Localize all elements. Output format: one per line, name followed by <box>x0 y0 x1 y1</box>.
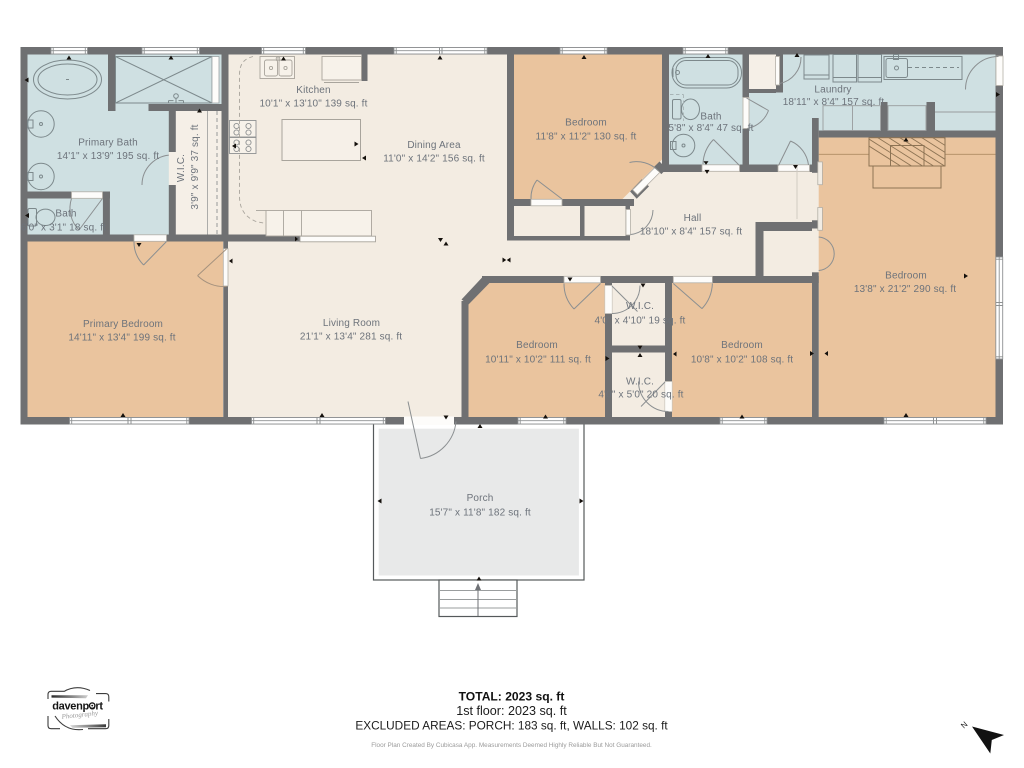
svg-text:TOTAL: 2023 sq. ft: TOTAL: 2023 sq. ft <box>459 690 565 704</box>
svg-text:1st floor: 2023 sq. ft: 1st floor: 2023 sq. ft <box>456 704 567 718</box>
svg-text:Living Room: Living Room <box>323 318 380 329</box>
svg-text:Bedroom: Bedroom <box>721 340 763 351</box>
svg-text:W.I.C.: W.I.C. <box>176 154 187 182</box>
svg-text:15'7" x 11'8" 182 sq. ft: 15'7" x 11'8" 182 sq. ft <box>429 507 531 518</box>
svg-text:Bedroom: Bedroom <box>565 118 607 129</box>
svg-text:3'9" x 9'9" 37 sq. ft: 3'9" x 9'9" 37 sq. ft <box>190 124 201 209</box>
svg-text:Bedroom: Bedroom <box>885 270 927 281</box>
svg-text:Bath: Bath <box>700 111 721 122</box>
svg-text:4'0" x 5'0" 20 sq. ft: 4'0" x 5'0" 20 sq. ft <box>598 390 683 401</box>
svg-text:Bedroom: Bedroom <box>516 340 558 351</box>
svg-text:4'0" x 4'10" 19 sq. ft: 4'0" x 4'10" 19 sq. ft <box>595 315 686 326</box>
svg-text:Primary Bath: Primary Bath <box>78 138 138 149</box>
svg-text:Bath: Bath <box>55 209 76 220</box>
svg-text:10'8" x 10'2" 108 sq. ft: 10'8" x 10'2" 108 sq. ft <box>691 354 793 365</box>
svg-text:Primary Bedroom: Primary Bedroom <box>83 319 163 330</box>
svg-text:13'8" x 21'2" 290 sq. ft: 13'8" x 21'2" 290 sq. ft <box>854 284 956 295</box>
svg-text:14'1" x 13'9" 195 sq. ft: 14'1" x 13'9" 195 sq. ft <box>57 151 159 162</box>
svg-text:Hall: Hall <box>684 213 702 224</box>
svg-text:Floor Plan Created By Cubicasa: Floor Plan Created By Cubicasa App. Meas… <box>371 742 652 749</box>
svg-text:11'8" x 11'2" 130 sq. ft: 11'8" x 11'2" 130 sq. ft <box>536 131 637 142</box>
svg-text:W.I.C.: W.I.C. <box>626 376 654 387</box>
svg-text:EXCLUDED AREAS: PORCH: 183 sq.: EXCLUDED AREAS: PORCH: 183 sq. ft, WALLS… <box>355 719 668 733</box>
svg-text:11'0" x 14'2" 156 sq. ft: 11'0" x 14'2" 156 sq. ft <box>383 154 485 165</box>
svg-text:14'11" x 13'4" 199 sq. ft: 14'11" x 13'4" 199 sq. ft <box>68 333 175 344</box>
svg-text:21'1" x 13'4" 281 sq. ft: 21'1" x 13'4" 281 sq. ft <box>300 332 402 343</box>
svg-text:Porch: Porch <box>467 493 494 504</box>
svg-text:Kitchen: Kitchen <box>296 85 330 96</box>
svg-text:10'1" x 13'10" 139 sq. ft: 10'1" x 13'10" 139 sq. ft <box>259 99 367 110</box>
svg-text:Dining Area: Dining Area <box>407 140 461 151</box>
svg-text:5'8" x 8'4" 47 sq. ft: 5'8" x 8'4" 47 sq. ft <box>668 123 753 134</box>
svg-text:18'10" x 8'4" 157 sq. ft: 18'10" x 8'4" 157 sq. ft <box>640 227 742 238</box>
svg-text:10'11" x 10'2" 111 sq. ft: 10'11" x 10'2" 111 sq. ft <box>485 354 591 365</box>
svg-text:6'0" x 3'1" 18 sq. ft: 6'0" x 3'1" 18 sq. ft <box>21 223 106 234</box>
svg-text:Laundry: Laundry <box>814 84 851 95</box>
svg-text:18'11" x 8'4" 157 sq. ft: 18'11" x 8'4" 157 sq. ft <box>783 97 885 108</box>
svg-text:W.I.C.: W.I.C. <box>626 301 654 312</box>
